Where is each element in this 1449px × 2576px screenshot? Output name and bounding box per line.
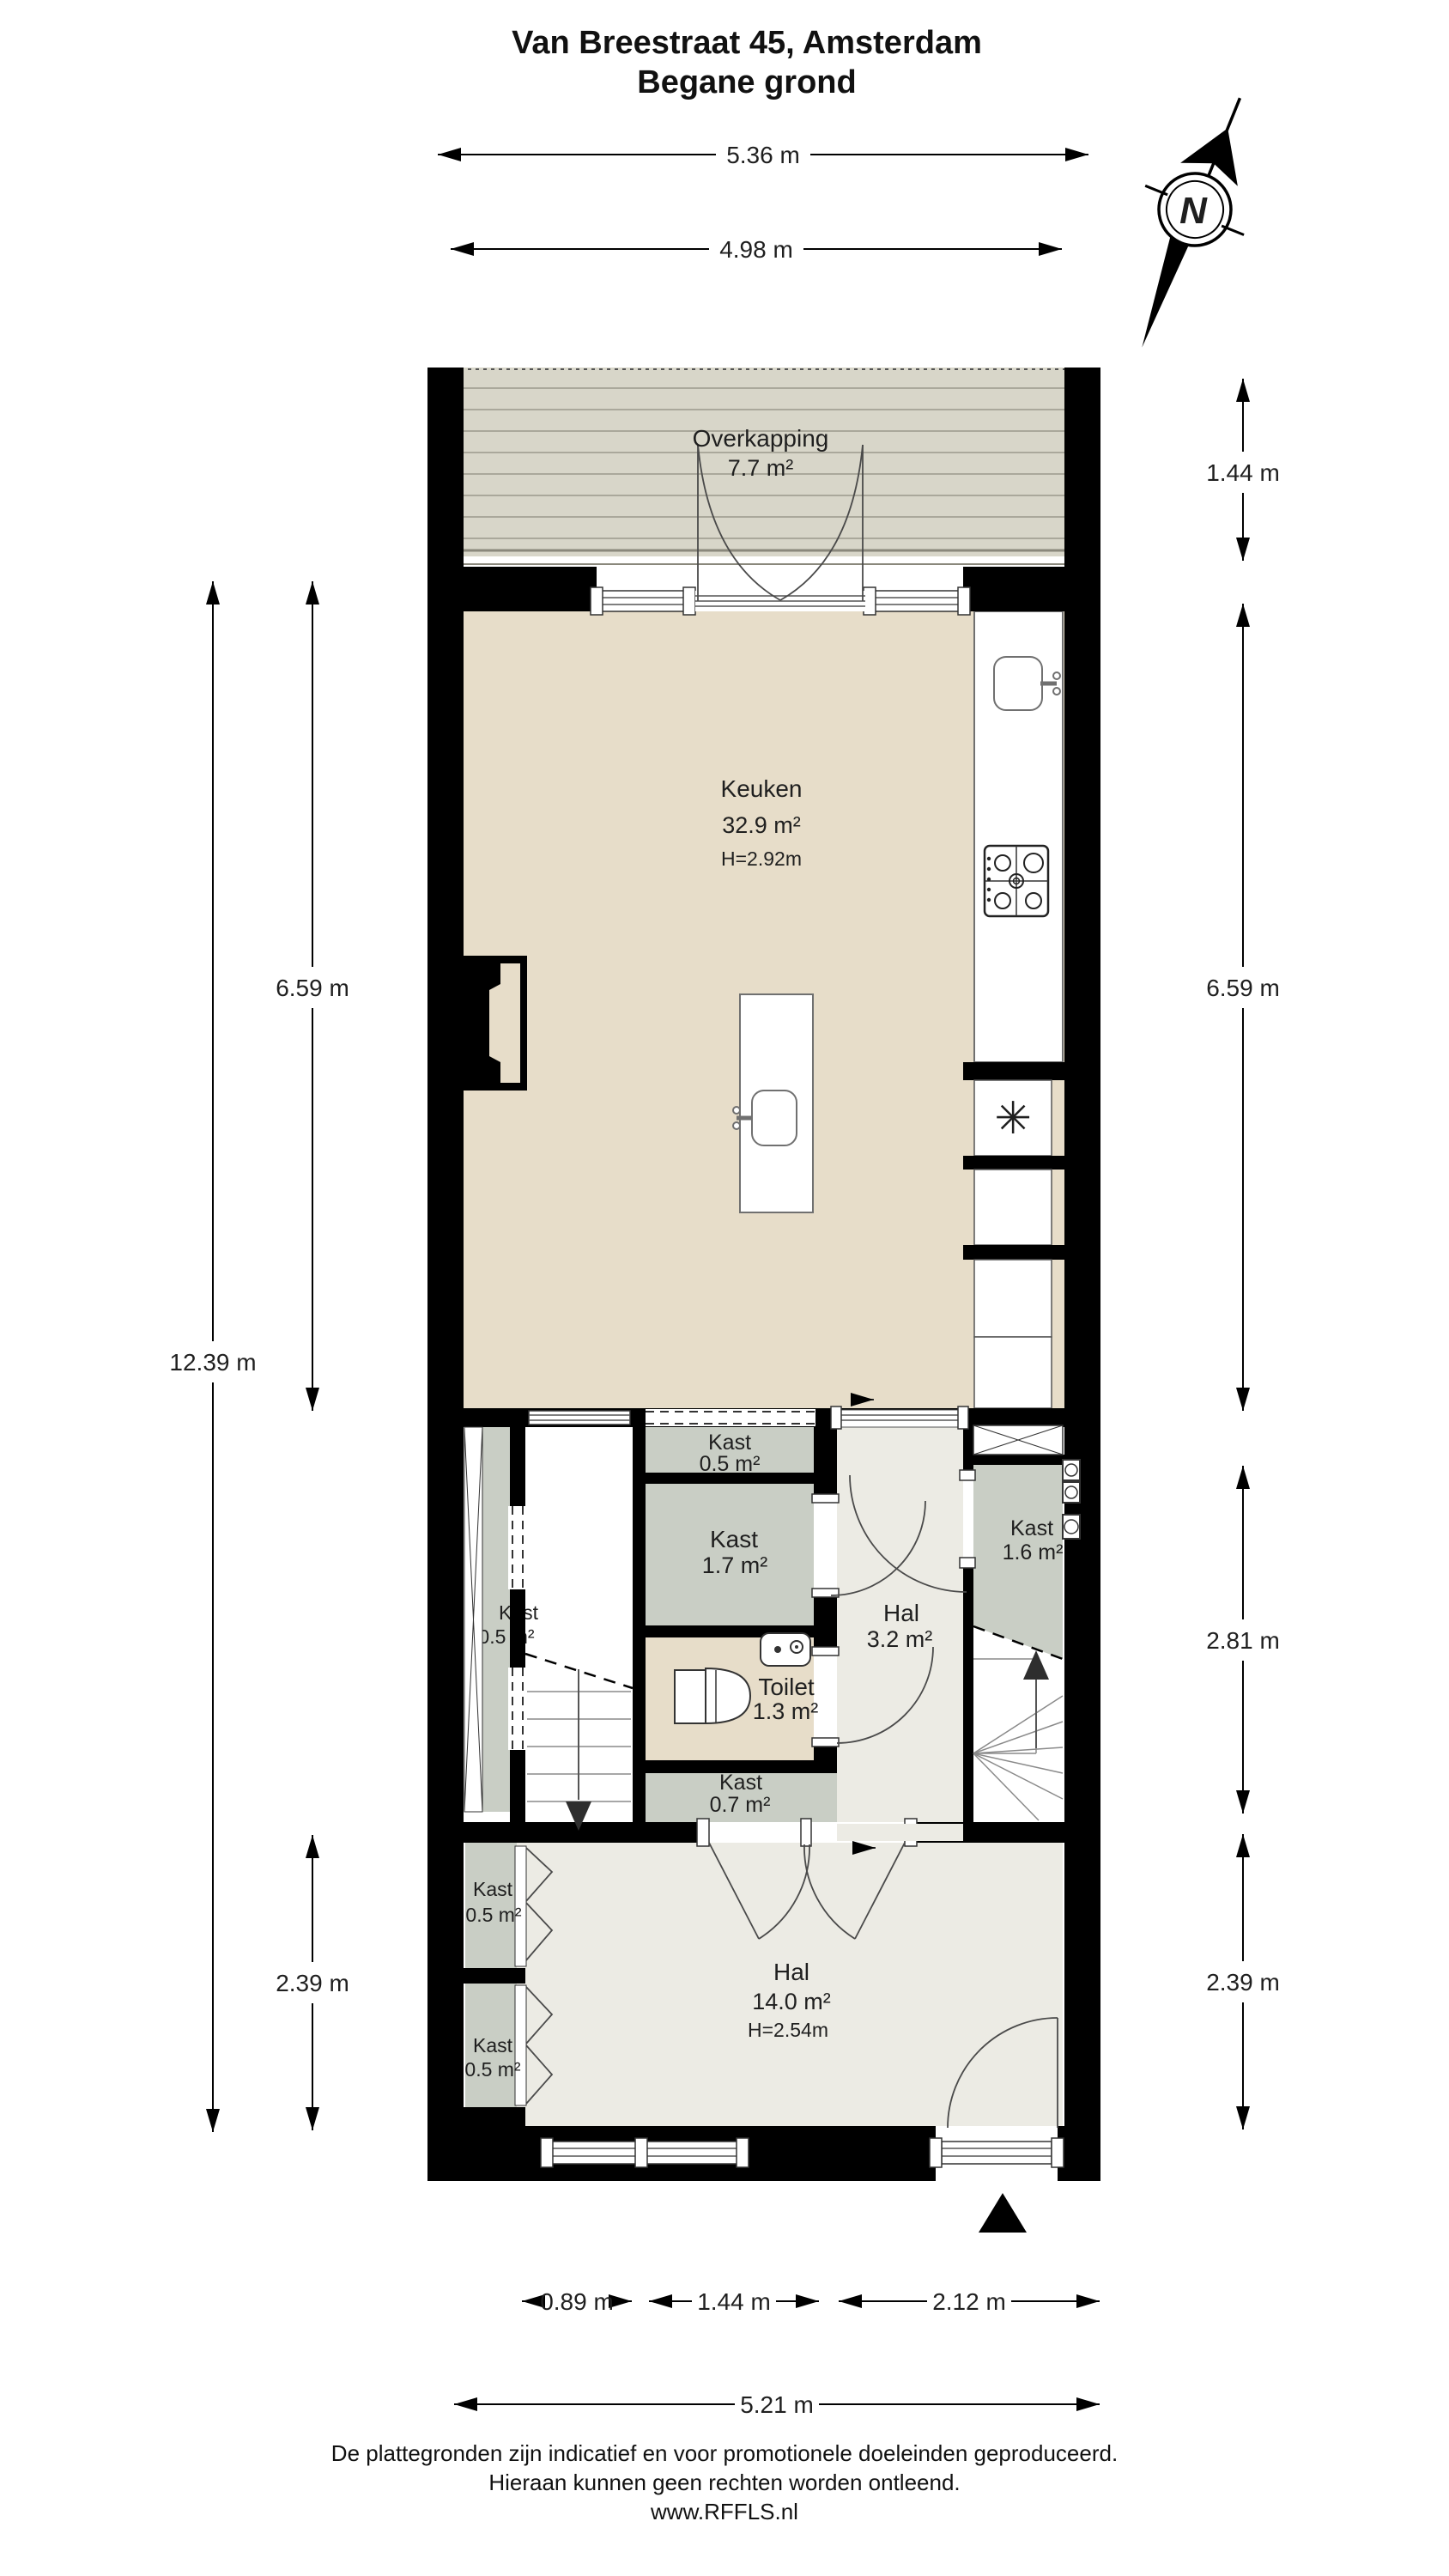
hal-boven-area: 3.2 m² [867, 1626, 933, 1652]
kast-hal-1-area: 0.5 m² [465, 1904, 522, 1926]
dim-left-total: 12.39 m [169, 1349, 256, 1376]
kast-17-name: Kast [710, 1526, 758, 1552]
page-subtitle: Begane grond [637, 64, 856, 100]
toilet-area: 1.3 m² [753, 1698, 819, 1724]
kitchen-cabinets: ✳ [963, 1062, 1064, 1408]
keuken-height: H=2.92m [721, 848, 802, 870]
hal-passage [837, 1824, 963, 1841]
hal-name: Hal [773, 1959, 809, 1985]
floorplan-drawing: Van Breestraat 45, Amsterdam Begane gron… [0, 0, 1449, 2576]
south-window [541, 2138, 749, 2167]
toilet-bowl-icon [675, 1668, 750, 1723]
keuken-name: Keuken [721, 775, 803, 802]
overkapping-area: 7.7 m² [728, 455, 794, 481]
stairs-up [973, 1626, 1063, 1820]
footer-line1: De plattegronden zijn indicatief en voor… [331, 2440, 1118, 2466]
stairwell-glazing [529, 1411, 630, 1425]
hal-floor [465, 1843, 1063, 2126]
dim-right-overkapping: 1.44 m [1206, 459, 1280, 486]
dim-right-hal: 2.39 m [1206, 1969, 1280, 1996]
kast-keuken-name: Kast [708, 1431, 751, 1455]
kitchen-island [733, 994, 813, 1212]
keuken-area: 32.9 m² [722, 812, 801, 838]
page-title: Van Breestraat 45, Amsterdam [512, 25, 982, 61]
kast-sliding-door [646, 1409, 815, 1426]
kast-keuken-area: 0.5 m² [700, 1452, 761, 1476]
shaft-cross [464, 1427, 482, 1812]
kast-07-area: 0.7 m² [710, 1793, 771, 1817]
kast-17-area: 1.7 m² [702, 1552, 768, 1578]
compass-north-label: N [1179, 190, 1208, 232]
footer-website: www.RFFLS.nl [650, 2499, 798, 2524]
footer-line2: Hieraan kunnen geen rechten worden ontle… [488, 2470, 960, 2495]
kast-strip-area: 0.5 m² [478, 1625, 535, 1648]
stairs-up-arrow [1023, 1650, 1049, 1680]
compass-icon: N [1088, 77, 1291, 367]
ventilation-fan-icon: ✳ [994, 1094, 1032, 1144]
hal-height: H=2.54m [748, 2019, 828, 2041]
kast-hal-2-area: 0.5 m² [464, 2058, 521, 2081]
stove-icon [985, 846, 1048, 916]
overkapping-name: Overkapping [693, 425, 829, 452]
keuken-hal-partition [831, 1406, 968, 1429]
hal-area: 14.0 m² [752, 1989, 831, 2014]
dim-top-outer: 5.36 m [726, 142, 800, 168]
footer: De plattegronden zijn indicatief en voor… [331, 2440, 1118, 2524]
dim-bottom-total: 5.21 m [740, 2391, 814, 2418]
kitchen-counter [974, 611, 1063, 1062]
dim-bottom-stairs: 1.44 m [697, 2288, 771, 2315]
hal-boven-name: Hal [883, 1600, 919, 1626]
toilet-name: Toilet [758, 1674, 815, 1700]
dim-right-middle: 2.81 m [1206, 1627, 1280, 1654]
kast-07-name: Kast [719, 1771, 762, 1795]
kast-16-name: Kast [1010, 1516, 1053, 1540]
kast-16-area: 1.6 m² [1003, 1540, 1064, 1564]
meter-icons [1063, 1460, 1080, 1539]
dim-bottom-door: 2.12 m [932, 2288, 1006, 2315]
dim-right-keuken: 6.59 m [1206, 975, 1280, 1001]
dim-bottom-kast: 0.89 m [540, 2288, 614, 2315]
kast-hal-2-name: Kast [473, 2034, 513, 2057]
stairs-down [525, 1654, 633, 1831]
dim-left-keuken: 6.59 m [276, 975, 349, 1001]
floorplan-page: Van Breestraat 45, Amsterdam Begane gron… [0, 0, 1449, 2576]
entrance-marker-icon [979, 2193, 1027, 2233]
kast-hal-1-name: Kast [473, 1878, 513, 1900]
shaft-box [973, 1425, 1063, 1455]
wash-basin-icon [761, 1633, 810, 1666]
dim-top-inner: 4.98 m [719, 236, 793, 263]
dim-left-hal: 2.39 m [276, 1970, 349, 1996]
